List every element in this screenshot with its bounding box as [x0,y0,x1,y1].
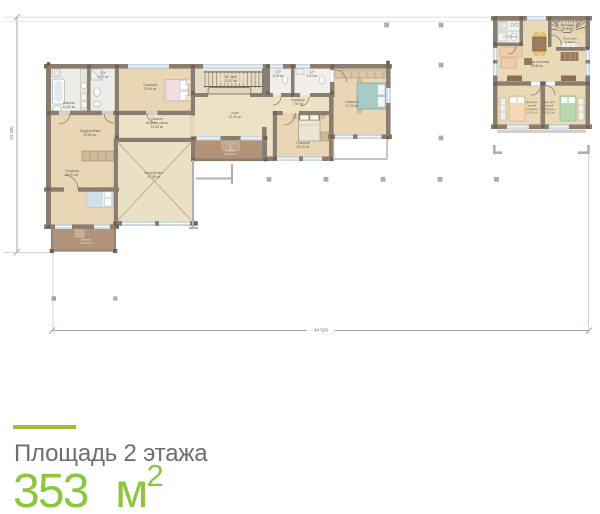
svg-text:Коридор7,90 м²: Коридор7,90 м² [291,98,305,106]
svg-text:44 500: 44 500 [314,328,328,333]
svg-text:Спальня20,28 м²: Спальня20,28 м² [296,141,310,149]
svg-text:Балкон17,11 м²: Балкон17,11 м² [80,238,92,246]
svg-text:С/У 3,40 м²: С/У 3,40 м² [503,35,517,39]
svg-text:Вт. свет11,97 м²: Вт. свет11,97 м² [225,75,239,83]
svg-text:Балкон11,94 м²: Балкон11,94 м² [224,149,236,157]
svg-text:Спальня20,91 м²: Спальня20,91 м² [65,169,79,177]
svg-text:Ванная11,06 м²: Ванная11,06 м² [63,101,77,109]
svg-text:Дом длягостейСпальня13,22 м²: Дом длягостейСпальня13,22 м² [543,100,555,115]
svg-text:Спальня22,55 м²: Спальня22,55 м² [143,83,157,91]
svg-text:23 400: 23 400 [9,126,14,140]
svg-text:Дом длягостейСпальня13,21 м²: Дом длягостейСпальня13,21 м² [526,100,538,115]
svg-text:Спальня27,28 м²: Спальня27,28 м² [345,100,359,108]
